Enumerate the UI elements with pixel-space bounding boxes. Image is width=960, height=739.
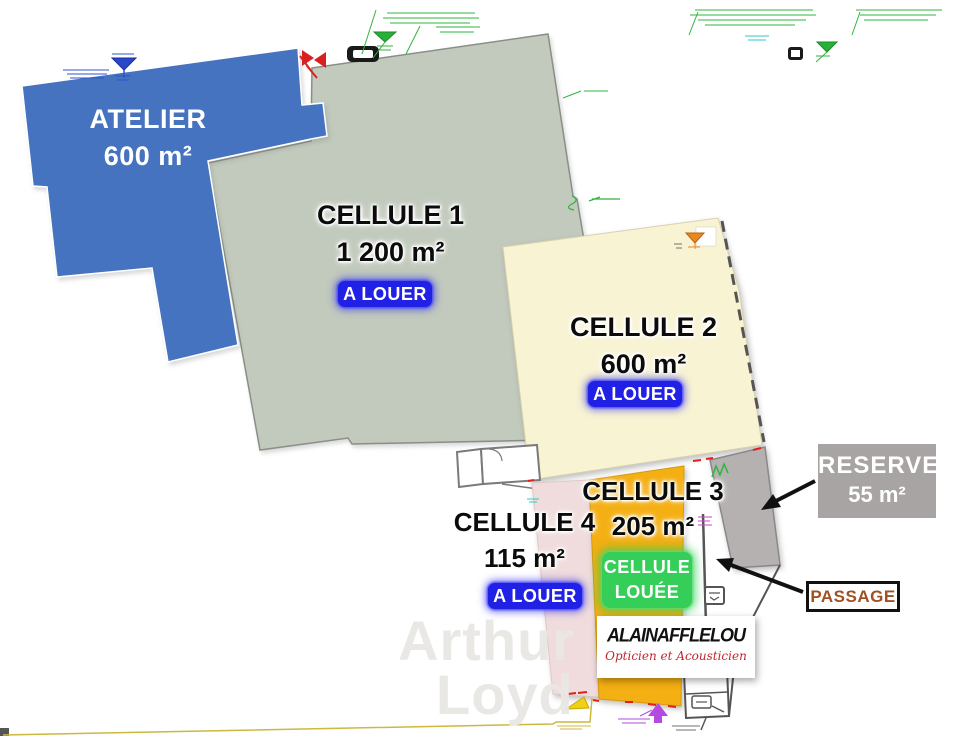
cellule3-status-line1: CELLULE <box>602 555 692 580</box>
reserve-callout: RESERVE 55 m² <box>818 444 936 518</box>
cellule1-status-badge: A LOUER <box>338 281 432 307</box>
cad-annotation-purple-arrow <box>618 703 668 723</box>
plan-drawing <box>0 0 960 739</box>
floor-plan: Arthur Loyd ATELIER 600 m² CELLULE 1 1 2… <box>0 0 960 739</box>
cad-annotation-green-funnel <box>373 32 396 58</box>
cad-annotation-sign-icon <box>347 46 379 62</box>
reserve-area: 55 m² <box>818 482 936 508</box>
passage-callout: PASSAGE <box>806 581 900 612</box>
cad-annotation-top-right-icons <box>745 36 837 62</box>
door-icon <box>705 587 724 604</box>
cad-annotation-green-notes-top <box>362 10 942 54</box>
cellule3-status-badge: CELLULE LOUÉE <box>602 552 692 608</box>
cellule4-status-badge: A LOUER <box>488 583 582 609</box>
tenant-brand: ALAINAFFLELOU <box>597 624 755 647</box>
tenant-logo-card: ALAINAFFLELOU Opticien et Acousticien <box>597 616 755 678</box>
zone-cellule2-shape <box>503 218 762 480</box>
cad-annotation-magenta-text <box>698 517 712 525</box>
cad-annotation-dark-text-bottom <box>672 726 700 730</box>
tenant-tagline: Opticien et Acousticien <box>597 649 755 663</box>
cad-annotation-yellow-line <box>0 697 592 736</box>
small-rooms <box>457 445 540 489</box>
meter-icon <box>692 696 711 708</box>
cellule3-status-line2: LOUÉE <box>602 580 692 605</box>
reserve-title: RESERVE <box>818 452 936 480</box>
cellule2-status-badge: A LOUER <box>588 381 682 407</box>
